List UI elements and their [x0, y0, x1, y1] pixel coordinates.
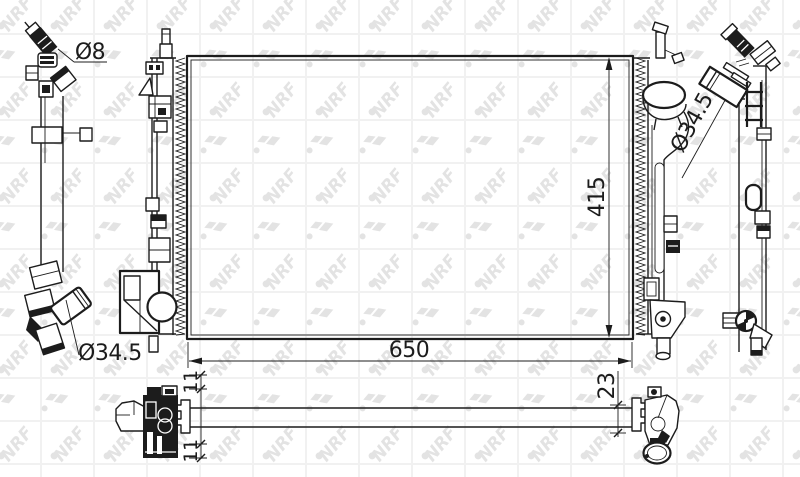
tube-offset-bottom-label: 11	[180, 439, 202, 462]
core-height-label: 415	[585, 177, 610, 218]
core-width-label: 650	[389, 338, 430, 363]
radiator-technical-drawing: NRF 415 650	[0, 0, 800, 477]
tube-offset-top-label: 11	[180, 370, 202, 393]
outlet-diameter-left-label: Ø34.5	[78, 341, 142, 366]
tube-depth-label: 23	[595, 373, 620, 400]
pipe-small-diameter-label: Ø8	[75, 40, 105, 65]
